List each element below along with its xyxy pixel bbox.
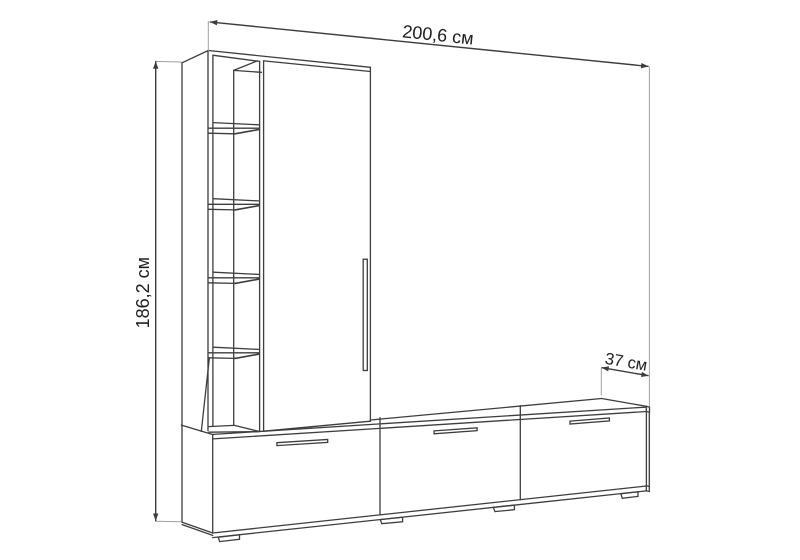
svg-text:186,2 см: 186,2 см — [133, 257, 153, 328]
